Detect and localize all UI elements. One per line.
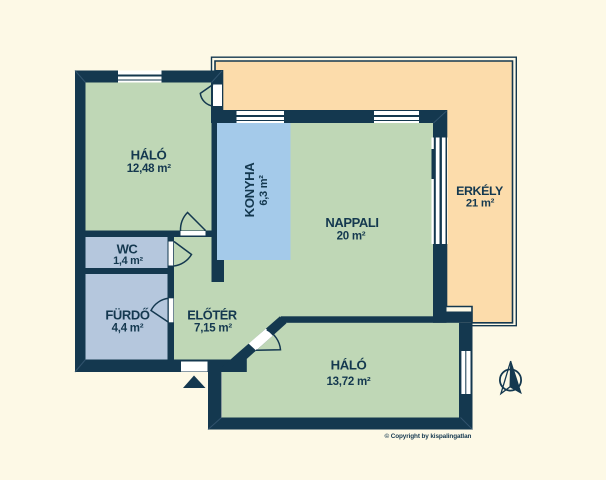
svg-text:KONYHA: KONYHA [242,162,257,218]
svg-text:6,3 m²: 6,3 m² [258,175,270,206]
svg-text:12,48 m²: 12,48 m² [127,163,171,175]
svg-text:7,15 m²: 7,15 m² [194,323,232,335]
svg-text:21 m²: 21 m² [466,198,495,210]
svg-text:FÜRDŐ: FÜRDŐ [105,308,150,323]
svg-text:1,4 m²: 1,4 m² [113,255,143,267]
svg-text:4,4 m²: 4,4 m² [112,323,144,335]
svg-text:ERKÉLY: ERKÉLY [456,183,504,198]
svg-text:NAPPALI: NAPPALI [325,215,378,230]
svg-text:HÁLÓ: HÁLÓ [131,147,167,162]
svg-text:13,72 m²: 13,72 m² [326,376,370,388]
svg-text:© Copyright by kispalingatlan: © Copyright by kispalingatlan [385,432,472,440]
svg-text:HÁLÓ: HÁLÓ [331,357,367,372]
svg-text:20 m²: 20 m² [337,230,366,242]
svg-text:ELŐTÉR: ELŐTÉR [187,308,237,323]
